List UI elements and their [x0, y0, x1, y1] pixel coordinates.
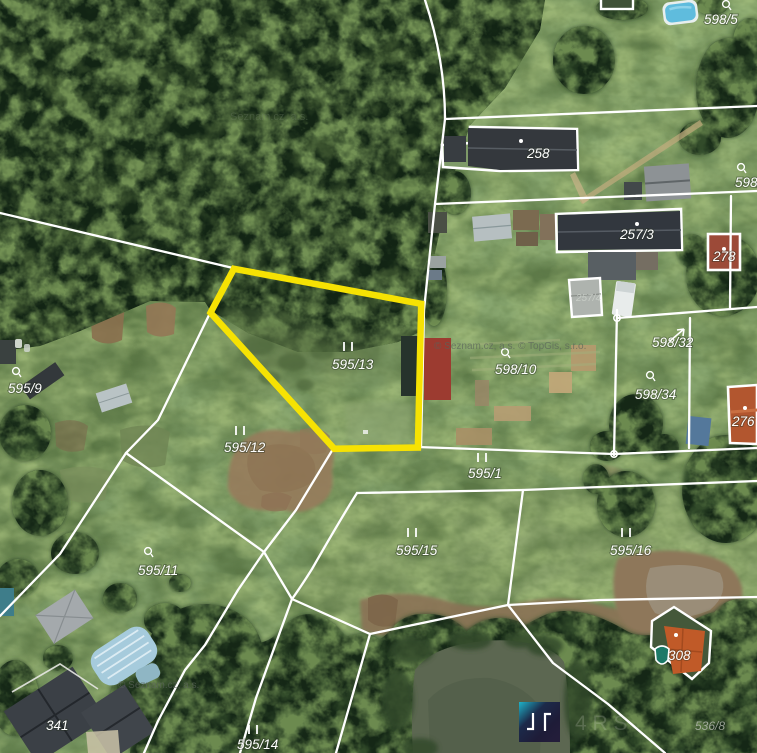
svg-text:257/4: 257/4 — [575, 293, 601, 304]
svg-text:4 R S: 4 R S — [575, 712, 628, 735]
svg-text:598/5: 598/5 — [704, 12, 738, 27]
svg-text:598/10: 598/10 — [495, 362, 537, 377]
svg-text:595/12: 595/12 — [224, 440, 266, 455]
svg-text:598/32: 598/32 — [652, 335, 694, 350]
svg-text:595/1: 595/1 — [468, 466, 502, 481]
svg-text:595/11: 595/11 — [138, 563, 178, 578]
svg-text:308: 308 — [668, 648, 691, 663]
svg-text:276: 276 — [731, 414, 755, 429]
svg-text:278: 278 — [712, 249, 736, 264]
svg-text:595/13: 595/13 — [332, 357, 374, 372]
svg-text:258: 258 — [526, 146, 550, 161]
svg-text:595/9: 595/9 — [8, 381, 42, 396]
svg-text:© Seznam.cz, a.s. © TopGis, s: © Seznam.cz, a.s. © TopGis, s.r.o. — [434, 341, 586, 352]
svg-text:595/15: 595/15 — [396, 543, 438, 558]
svg-text:598/: 598/ — [735, 175, 757, 190]
svg-text:598/34: 598/34 — [635, 387, 676, 402]
svg-text:© Seznam.cz, a.s.: © Seznam.cz, a.s. — [118, 680, 199, 691]
svg-text:Seznam.cz, a.s.: Seznam.cz, a.s. — [230, 111, 308, 123]
svg-text:595/14: 595/14 — [237, 737, 278, 752]
svg-text:536/8: 536/8 — [695, 719, 725, 733]
svg-text:595/16: 595/16 — [610, 543, 652, 558]
svg-text:341: 341 — [46, 718, 69, 733]
svg-text:257/3: 257/3 — [619, 227, 654, 242]
